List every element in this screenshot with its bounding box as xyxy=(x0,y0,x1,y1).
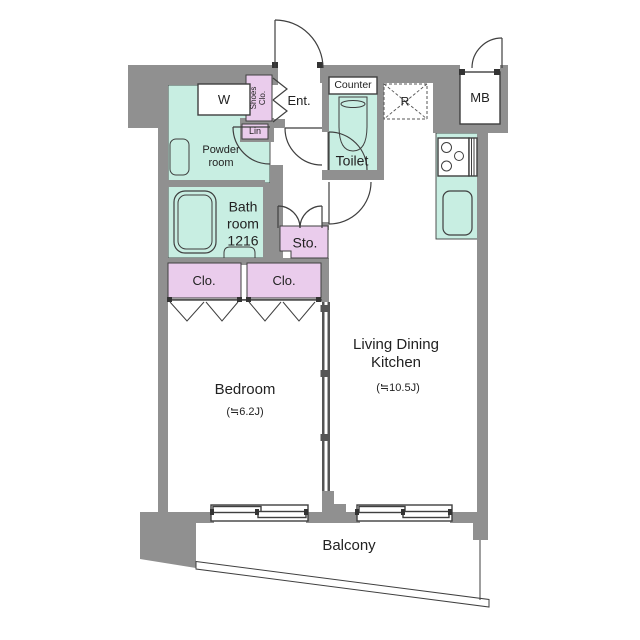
floorplan: Bedroom (≒6.2J) Living Dining Kitchen (≒… xyxy=(0,0,640,640)
room-label-bedroom: Bedroom xyxy=(215,382,276,399)
label-shoes-line1: Shoes xyxy=(249,87,258,110)
entrance-door-swing-icon xyxy=(275,20,323,68)
room-label-ldk-line1: Living Dining xyxy=(353,337,439,354)
sliding-partition-icon xyxy=(321,302,331,491)
label-shoes-closet: Shoes Clo. xyxy=(250,87,268,110)
storage-double-door-icon xyxy=(278,206,322,228)
room-size-bedroom: (≒6.2J) xyxy=(226,406,263,418)
ldk-door-swing-icon xyxy=(329,182,371,224)
room-label-ldk-line2: Kitchen xyxy=(371,355,421,372)
label-meter-box: MB xyxy=(470,91,490,105)
balcony-side-wall xyxy=(140,512,196,568)
room-label-powder-line1: Powder xyxy=(202,144,239,156)
label-balcony: Balcony xyxy=(322,538,375,555)
room-label-powder-line2: room xyxy=(208,157,233,169)
floorplan-drawing xyxy=(0,0,640,640)
room-size-ldk: (≒10.5J) xyxy=(376,382,419,394)
label-closet-left: Clo. xyxy=(192,274,215,288)
label-fridge: R xyxy=(401,95,410,108)
room-label-bath-line1: Bath xyxy=(229,199,258,214)
balcony-railing xyxy=(196,562,489,608)
room-label-toilet: Toilet xyxy=(336,153,369,168)
mb-door-swing-icon xyxy=(472,38,502,68)
bedroom-window-icon xyxy=(210,505,308,521)
window-pillar xyxy=(322,491,346,523)
hall-door-swing-icon xyxy=(285,128,322,165)
room-label-bath-line2: room xyxy=(227,216,259,231)
closet-folding-doors-icon xyxy=(167,297,322,321)
label-closet-right: Clo. xyxy=(272,274,295,288)
label-linen: Lin xyxy=(249,127,261,137)
label-shoes-line2: Clo. xyxy=(258,91,267,105)
label-storage: Sto. xyxy=(293,235,318,250)
stove-icon xyxy=(438,138,477,176)
room-label-entrance: Ent. xyxy=(287,94,310,108)
label-washer: W xyxy=(218,93,230,107)
ldk-window-icon xyxy=(355,505,452,521)
label-counter: Counter xyxy=(334,80,371,92)
room-label-bath-line3: 1216 xyxy=(227,233,258,248)
